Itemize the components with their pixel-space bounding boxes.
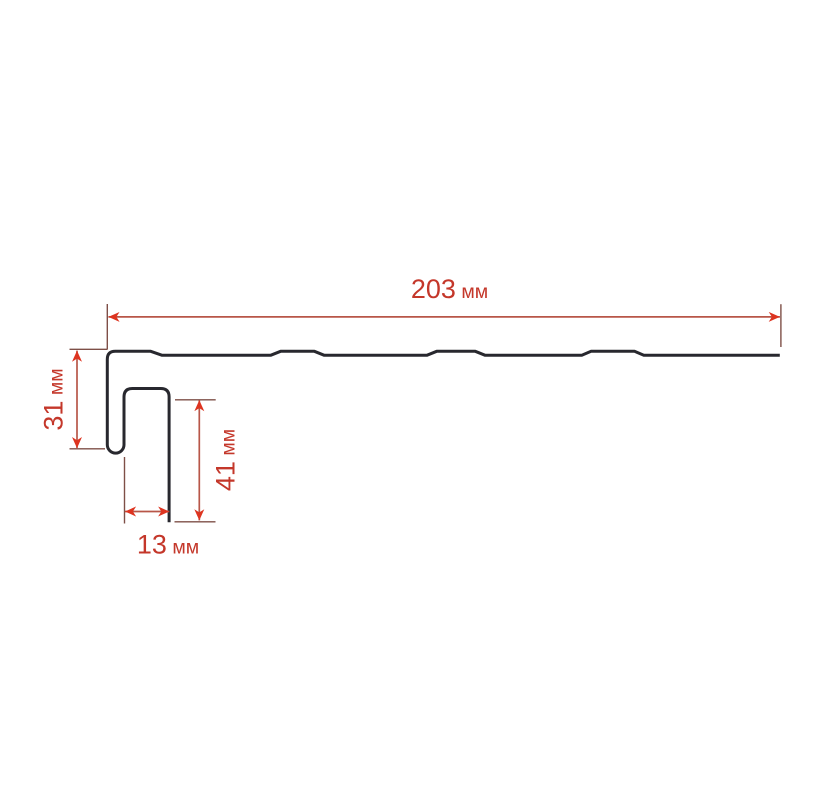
svg-text:31 мм: 31 мм: [38, 368, 68, 430]
svg-text:13 мм: 13 мм: [137, 530, 199, 560]
svg-text:41 мм: 41 мм: [211, 429, 241, 491]
svg-text:203 мм: 203 мм: [411, 274, 488, 304]
